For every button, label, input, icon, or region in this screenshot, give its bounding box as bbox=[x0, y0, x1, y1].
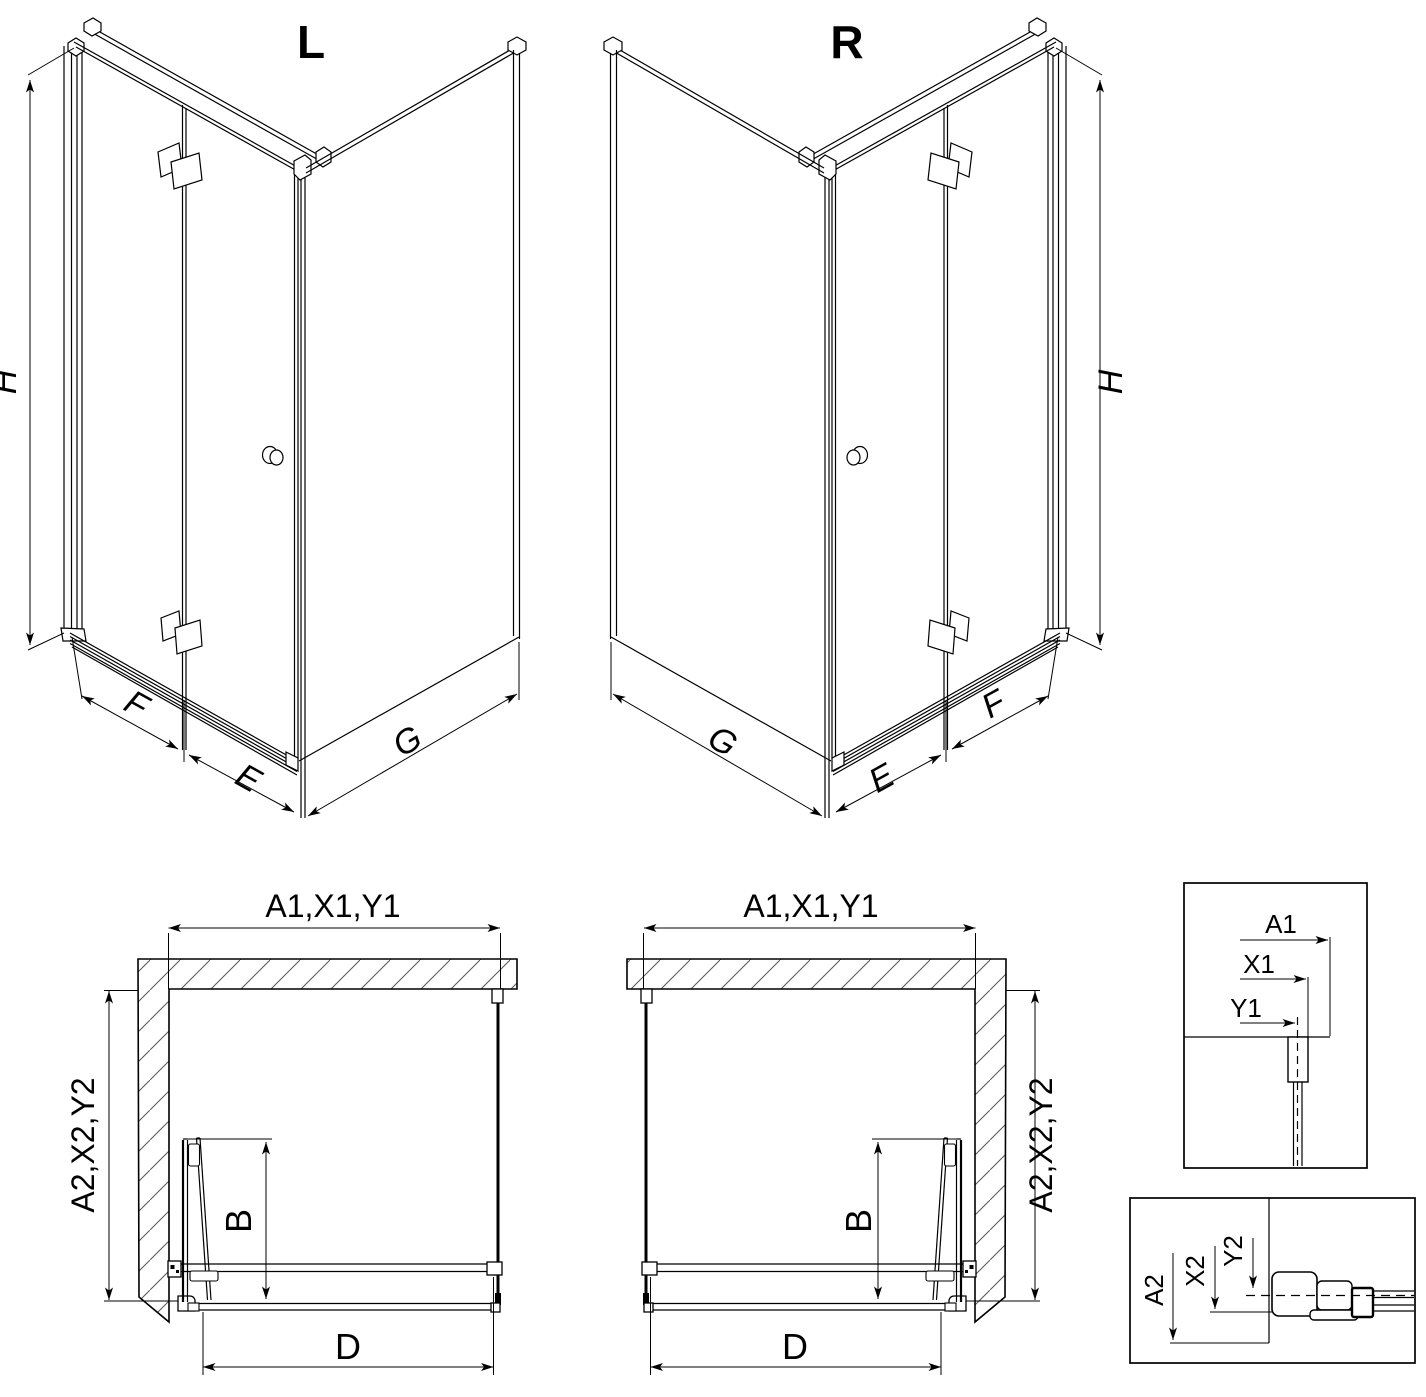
dim-label-g-right: G bbox=[702, 718, 744, 764]
dim-label-g-left: G bbox=[387, 718, 429, 764]
dim-label-height-left: H bbox=[0, 369, 24, 394]
plan-view-right: A1,X1,Y1 A2,X2,Y2 B D bbox=[627, 888, 1059, 1375]
detail-box-width: A1 X1 Y1 bbox=[1184, 883, 1367, 1168]
iso-figure-right: R H G E F bbox=[604, 16, 1130, 818]
plan-view-left: A1,X1,Y1 A2,X2,Y2 B D bbox=[65, 888, 517, 1375]
detail-label-a1: A1 bbox=[1265, 909, 1297, 939]
wall-section-left bbox=[138, 959, 517, 1322]
figure-title-right: R bbox=[830, 16, 863, 68]
drawing-sheet: L H F E G R H G E F A1,X1,Y1 A2,X2,Y2 B … bbox=[0, 0, 1426, 1397]
iso-figure-left: L H F E G bbox=[0, 16, 526, 818]
detail-label-x2: X2 bbox=[1180, 1255, 1210, 1287]
dim-label-height-right: H bbox=[1092, 369, 1130, 394]
figure-title-left: L bbox=[297, 16, 325, 68]
plan-dim-depth-left: A2,X2,Y2 bbox=[65, 1077, 101, 1212]
dim-label-e-right: E bbox=[863, 756, 902, 800]
plan-dim-fold-left: B bbox=[218, 1209, 259, 1233]
plan-dim-fold-right: B bbox=[838, 1209, 879, 1233]
plan-dim-opening-left: D bbox=[335, 1326, 361, 1367]
plan-dim-width-right: A1,X1,Y1 bbox=[743, 888, 878, 924]
detail-box-depth: A2 X2 Y2 bbox=[1130, 1198, 1415, 1363]
detail-label-y2: Y2 bbox=[1218, 1235, 1248, 1267]
detail-label-y1: Y1 bbox=[1230, 993, 1262, 1023]
plan-dim-width-left: A1,X1,Y1 bbox=[265, 888, 400, 924]
plan-dim-depth-right: A2,X2,Y2 bbox=[1023, 1077, 1059, 1212]
dim-label-e-left: E bbox=[229, 756, 268, 800]
detail-label-a2: A2 bbox=[1139, 1274, 1169, 1306]
detail-label-x1: X1 bbox=[1243, 949, 1275, 979]
plan-dim-opening-right: D bbox=[782, 1326, 808, 1367]
wall-section-right bbox=[627, 959, 1006, 1322]
technical-drawing: L H F E G R H G E F A1,X1,Y1 A2,X2,Y2 B … bbox=[0, 0, 1426, 1397]
